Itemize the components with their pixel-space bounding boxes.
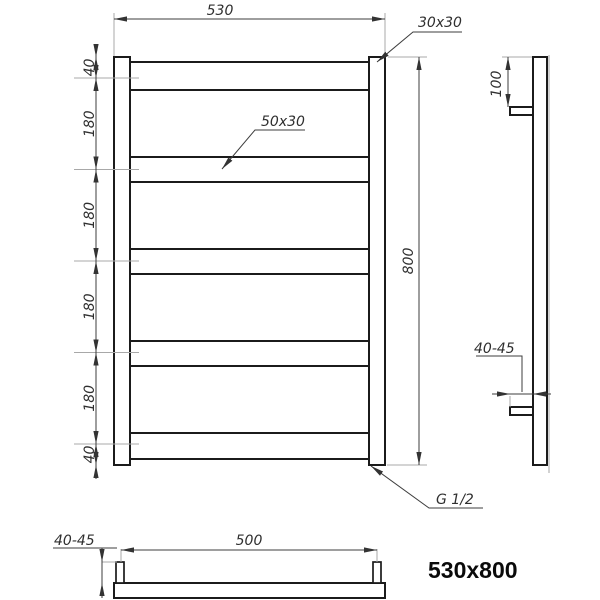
label-segment: 180 <box>82 202 98 229</box>
label-width: 530 <box>207 3 234 19</box>
label-connection-thread: G 1/2 <box>436 492 474 508</box>
label-height: 800 <box>401 248 417 275</box>
label-segment: 180 <box>82 385 98 412</box>
label-bracket-offset: 100 <box>489 71 505 98</box>
label-segment: 180 <box>82 110 98 137</box>
label-segment: 40 <box>82 446 98 464</box>
label-segment: 180 <box>82 293 98 320</box>
label-centers-distance: 500 <box>236 533 263 549</box>
left-bracket-stub <box>116 562 124 583</box>
size-title: 530x800 <box>428 557 518 583</box>
right-bracket-stub <box>373 562 381 583</box>
label-bottom-wall-distance: 40-45 <box>54 533 95 549</box>
label-segment: 40 <box>82 59 98 77</box>
label-post-profile: 30x30 <box>418 15 462 31</box>
towel-rail-technical-drawing: 530 800 40 180 180 180 <box>0 0 600 600</box>
label-rail-profile: 50x30 <box>261 114 305 130</box>
label-side-wall-distance: 40-45 <box>474 341 515 357</box>
